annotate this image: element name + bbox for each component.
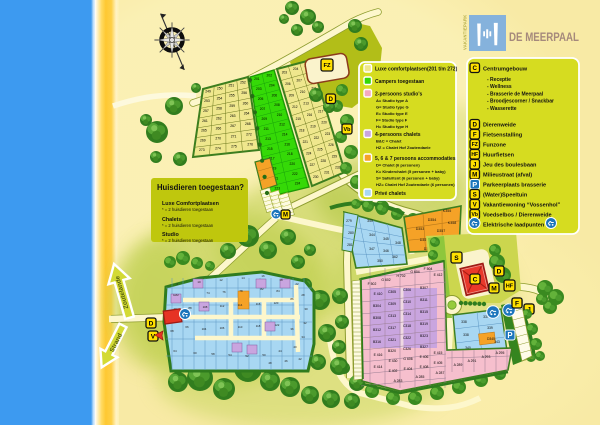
svg-text:280: 280 [348,231,354,235]
svg-text:M: M [283,213,288,219]
svg-text:F= Studio type F: F= Studio type F [376,118,408,123]
svg-text:B315: B315 [420,310,428,314]
svg-text:68: 68 [170,329,174,333]
svg-text:2-persoons studio's: 2-persoons studio's [375,92,423,98]
svg-text:222: 222 [314,136,320,140]
svg-text:B311: B311 [420,298,428,302]
svg-text:224: 224 [306,152,312,156]
svg-text:M: M [472,171,477,178]
svg-text:B312: B312 [373,328,381,332]
svg-text:213: 213 [303,102,309,106]
svg-text:263: 263 [230,114,236,118]
svg-text:H= Studio type H: H= Studio type H [376,124,408,129]
svg-text:225: 225 [317,147,323,151]
svg-text:Milieustraat (afval): Milieustraat (afval) [483,173,532,179]
svg-text:279: 279 [346,219,352,223]
svg-text:22: 22 [295,282,299,286]
svg-text:- Broodjescorner / Snackbar: - Broodjescorner / Snackbar [487,99,554,105]
svg-text:C317: C317 [388,326,396,330]
svg-text:253: 253 [204,99,210,103]
svg-text:259: 259 [229,104,235,108]
svg-text:B&C = Chalet: B&C = Chalet [376,139,402,144]
svg-text:58: 58 [211,352,215,356]
svg-text:224: 224 [295,182,301,186]
svg-text:S: S [454,255,459,262]
svg-text:226: 226 [328,143,334,147]
svg-text:B307: B307 [420,286,428,290]
svg-text:36: 36 [290,327,294,331]
svg-text:256: 256 [241,91,247,95]
svg-text:74: 74 [206,291,210,295]
svg-text:251: 251 [228,84,234,88]
svg-text:30: 30 [304,307,308,311]
svg-text:210: 210 [277,113,283,117]
svg-text:28: 28 [301,293,305,297]
svg-text:221: 221 [303,140,309,144]
svg-text:261: 261 [202,119,208,123]
svg-text:211: 211 [264,127,269,131]
svg-text:C321: C321 [388,338,396,342]
svg-text:D: D [497,268,502,275]
svg-text:86: 86 [290,297,294,301]
svg-text:E 405: E 405 [434,361,443,365]
svg-text:Voedselbos / Dierenweide: Voedselbos / Dierenweide [483,213,552,219]
svg-text:D353: D353 [416,227,425,231]
svg-text:223: 223 [325,132,331,136]
svg-text:A 291: A 291 [468,359,477,363]
svg-text:362: 362 [392,255,398,259]
svg-text:266: 266 [216,126,222,130]
svg-text:232: 232 [335,166,341,170]
svg-text:208: 208 [274,103,280,107]
svg-text:D354: D354 [428,218,437,222]
svg-text:64: 64 [173,349,177,353]
svg-text:DE MEERPAAL: DE MEERPAAL [509,32,579,44]
svg-text:106: 106 [220,326,225,330]
svg-text:227: 227 [310,163,316,167]
svg-text:B327: B327 [420,345,428,349]
svg-text:B316: B316 [373,340,381,344]
svg-text:338: 338 [461,320,467,324]
svg-text:E 408: E 408 [420,365,429,369]
svg-text:203: 203 [282,70,288,74]
svg-text:258: 258 [216,107,222,111]
svg-text:D357: D357 [437,229,446,233]
svg-text:Dierenweide: Dierenweide [483,123,516,129]
svg-text:230: 230 [313,175,319,179]
svg-text:252: 252 [240,81,246,85]
svg-text:268: 268 [245,122,251,126]
svg-text:348: 348 [395,241,401,245]
svg-text:(Water)Speeltuin: (Water)Speeltuin [483,193,528,199]
svg-text:Parkeerplaats brasserie: Parkeerplaats brasserie [483,183,546,189]
svg-text:E 404: E 404 [404,367,413,371]
svg-text:A 285: A 285 [416,375,425,379]
svg-text:16: 16 [261,274,265,278]
svg-text:G 602: G 602 [381,278,390,282]
svg-text:J: J [473,161,477,168]
svg-text:12: 12 [219,278,223,282]
svg-text:231: 231 [324,170,330,174]
svg-text:76: 76 [222,290,226,294]
svg-text:HZ = Chalet Hof Zoutendaele: HZ = Chalet Hof Zoutendaele [376,145,431,150]
svg-text:217: 217 [318,109,324,113]
svg-text:E 415: E 415 [434,351,443,355]
svg-text:209: 209 [289,94,295,98]
svg-text:223: 223 [275,187,281,191]
svg-text:205: 205 [258,97,264,101]
svg-text:269: 269 [200,138,206,142]
svg-text:HZ2: HZ2 [173,293,179,297]
svg-text:A 295: A 295 [496,351,505,355]
svg-text:270: 270 [215,136,221,140]
svg-text:229: 229 [332,154,338,158]
svg-text:201: 201 [254,77,260,81]
svg-text:A 293: A 293 [482,355,491,359]
svg-text:345: 345 [383,237,389,241]
svg-text:H 702: H 702 [396,274,405,278]
svg-text:204: 204 [293,67,299,71]
svg-text:- Wellness: - Wellness [487,84,512,90]
svg-text:66: 66 [185,325,189,329]
svg-text:B304: B304 [373,304,381,308]
svg-text:78: 78 [239,289,243,293]
svg-text:E 416: E 416 [374,353,383,357]
svg-text:C: C [473,65,478,72]
svg-text:228: 228 [321,159,327,163]
svg-text:B320: B320 [388,349,396,353]
svg-text:50: 50 [262,353,266,357]
svg-text:Elektrische laadpunten: Elektrische laadpunten [483,223,545,229]
svg-text:D345: D345 [487,337,495,341]
svg-text:212: 212 [279,123,285,127]
svg-text:262: 262 [216,116,222,120]
svg-text:114: 114 [238,303,243,307]
svg-text:A 287: A 287 [436,371,445,375]
svg-text:343: 343 [367,219,373,223]
svg-text:C326: C326 [403,347,411,351]
svg-text:274: 274 [215,146,221,150]
svg-text:350: 350 [377,259,383,263]
svg-text:Campers toegestaan: Campers toegestaan [375,79,424,85]
svg-text:- Wasserette: - Wasserette [487,106,517,112]
svg-text:E 414: E 414 [374,365,383,369]
svg-text:203: 203 [256,87,262,91]
svg-text:FZ: FZ [472,142,478,148]
svg-text:HF: HF [506,283,514,289]
svg-text:Jeu des boulesbaan: Jeu des boulesbaan [483,163,537,169]
svg-text:D: D [149,320,154,327]
svg-text:42: 42 [298,357,302,361]
svg-text:- Brasserie de Meerpaal: - Brasserie de Meerpaal [487,91,544,97]
svg-text:* = 2 huisdieren toegestaan: * = 2 huisdieren toegestaan [162,238,214,243]
svg-text:K= Kinderchalet (5 personen +: K= Kinderchalet (5 personen + baby) [376,169,446,174]
svg-text:5, 6 & 7 persoons accommodatie: 5, 6 & 7 persoons accommodaties [375,156,456,162]
svg-text:E 430: E 430 [389,359,398,363]
svg-text:210: 210 [300,90,306,94]
svg-text:219: 219 [310,125,316,129]
svg-text:E 412: E 412 [434,273,443,277]
svg-text:10: 10 [197,280,201,284]
svg-text:* = 2 huisdieren toegestaan: * = 2 huisdieren toegestaan [162,207,214,212]
svg-text:P: P [507,331,512,340]
svg-text:88: 88 [188,306,192,310]
svg-text:220: 220 [321,121,327,125]
svg-text:54: 54 [228,353,232,357]
svg-text:276: 276 [247,143,253,147]
svg-text:D: D [473,121,478,128]
svg-text:209: 209 [262,117,268,121]
svg-text:213: 213 [265,137,271,141]
svg-text:A= Studio type A: A= Studio type A [376,98,408,103]
svg-text:202: 202 [267,74,273,78]
svg-text:Huisdieren toegestaan?: Huisdieren toegestaan? [157,183,244,192]
svg-text:F: F [473,131,477,138]
svg-text:84: 84 [276,289,280,293]
svg-text:E 402: E 402 [389,369,398,373]
svg-text:122: 122 [275,323,280,327]
svg-text:218: 218 [299,128,305,132]
svg-text:60: 60 [193,351,197,355]
svg-text:G 606: G 606 [403,357,412,361]
svg-text:18: 18 [279,278,283,282]
svg-text:206: 206 [272,93,278,97]
svg-text:B308: B308 [373,316,381,320]
svg-text:260: 260 [243,101,249,105]
svg-text:215: 215 [296,117,302,121]
svg-text:C: C [473,276,478,283]
svg-text:249: 249 [205,89,211,93]
svg-text:Luxe comfortplaatsen(201 t/m 2: Luxe comfortplaatsen(201 t/m 272) [375,67,458,73]
svg-text:C313: C313 [388,314,396,318]
svg-text:A 283: A 283 [394,379,403,383]
svg-text:- Receptie: - Receptie [487,77,511,83]
svg-text:34: 34 [301,335,305,339]
svg-text:* = 2 huisdieren toegestaan: * = 2 huisdieren toegestaan [162,223,214,228]
svg-text:F 502: F 502 [368,282,377,286]
svg-text:Centrumgebouw: Centrumgebouw [483,67,528,73]
svg-text:K358: K358 [448,221,456,225]
svg-text:338: 338 [463,333,469,337]
svg-text:265: 265 [201,129,207,133]
svg-text:C306: C306 [403,288,411,292]
svg-text:216: 216 [284,142,290,146]
svg-text:A 289: A 289 [454,363,463,367]
svg-text:Fietsenstalling: Fietsenstalling [483,133,523,139]
svg-text:F 504: F 504 [424,267,433,271]
svg-text:M: M [491,285,497,292]
svg-text:120: 120 [274,301,279,305]
svg-text:212: 212 [292,105,298,109]
svg-text:273: 273 [199,148,205,152]
svg-text:264: 264 [244,112,250,116]
svg-text:VAKANTIEPARK: VAKANTIEPARK [463,14,468,50]
svg-text:Huurfietsen: Huurfietsen [483,153,515,159]
svg-text:44: 44 [278,349,282,353]
svg-text:108: 108 [203,305,208,309]
svg-text:C322: C322 [403,336,411,340]
svg-text:C314: C314 [403,312,411,316]
svg-text:112: 112 [220,304,225,308]
svg-text:255: 255 [229,94,235,98]
svg-text:118: 118 [256,324,261,328]
svg-text:110: 110 [238,325,243,329]
svg-text:F: F [515,300,519,307]
svg-text:S= Safaritent (6 personen + ba: S= Safaritent (6 personen + baby) [376,176,440,181]
svg-text:339: 339 [487,326,493,330]
svg-text:207: 207 [297,79,303,83]
svg-text:222: 222 [292,172,298,176]
svg-text:B319: B319 [420,322,428,326]
svg-text:E= Studio type E: E= Studio type E [376,111,408,116]
svg-text:HZ= Chalet Hof Zoutendaele (6: HZ= Chalet Hof Zoutendaele (6 personen) [376,182,455,187]
svg-text:275: 275 [231,145,237,149]
svg-text:Privé chalets: Privé chalets [375,191,406,197]
svg-text:V: V [151,333,156,340]
svg-text:104: 104 [202,327,207,331]
svg-text:254: 254 [217,97,223,101]
svg-text:D= Chalet (6 personen): D= Chalet (6 personen) [376,163,420,168]
svg-text:E 406: E 406 [420,355,429,359]
svg-text:C310: C310 [403,300,411,304]
svg-text:G= Studio type G: G= Studio type G [376,105,409,110]
svg-text:48: 48 [268,361,272,365]
svg-text:347: 347 [369,247,375,251]
svg-text:Vakantiewoning “Vossenhol”: Vakantiewoning “Vossenhol” [483,203,560,209]
svg-text:346: 346 [383,249,389,253]
svg-text:Vb: Vb [344,127,352,133]
svg-text:214: 214 [282,133,288,137]
svg-text:40: 40 [293,345,297,349]
svg-text:FZ: FZ [323,63,331,69]
svg-text:14: 14 [241,276,245,280]
svg-text:250: 250 [217,87,223,91]
svg-text:281: 281 [347,243,353,247]
svg-text:82: 82 [260,287,264,291]
svg-text:C305: C305 [388,290,396,294]
svg-text:257: 257 [203,109,209,113]
svg-text:K355: K355 [443,209,451,213]
svg-text:116: 116 [256,302,261,306]
svg-text:4-persoons chalets: 4-persoons chalets [375,132,421,138]
svg-text:46: 46 [284,359,288,363]
svg-text:HF: HF [471,152,478,158]
svg-text:207: 207 [260,107,266,111]
svg-text:32: 32 [303,321,307,325]
svg-text:S: S [473,191,477,198]
svg-text:271: 271 [231,134,237,138]
svg-text:E 410: E 410 [374,292,383,296]
svg-text:267: 267 [230,124,236,128]
svg-text:215: 215 [267,147,273,151]
svg-text:218: 218 [287,152,293,156]
svg-text:Funzone: Funzone [483,143,506,149]
svg-text:344: 344 [369,233,375,237]
svg-text:272: 272 [246,132,252,136]
svg-text:B323: B323 [420,334,428,338]
svg-text:206: 206 [285,82,291,86]
svg-text:C318: C318 [403,324,411,328]
svg-text:216: 216 [307,113,313,117]
svg-text:D: D [329,96,334,103]
svg-text:P: P [472,180,477,189]
svg-text:G 604: G 604 [410,270,419,274]
svg-text:52: 52 [245,354,249,358]
svg-text:220: 220 [290,162,296,166]
svg-text:204: 204 [269,84,275,88]
svg-text:C309: C309 [388,302,396,306]
